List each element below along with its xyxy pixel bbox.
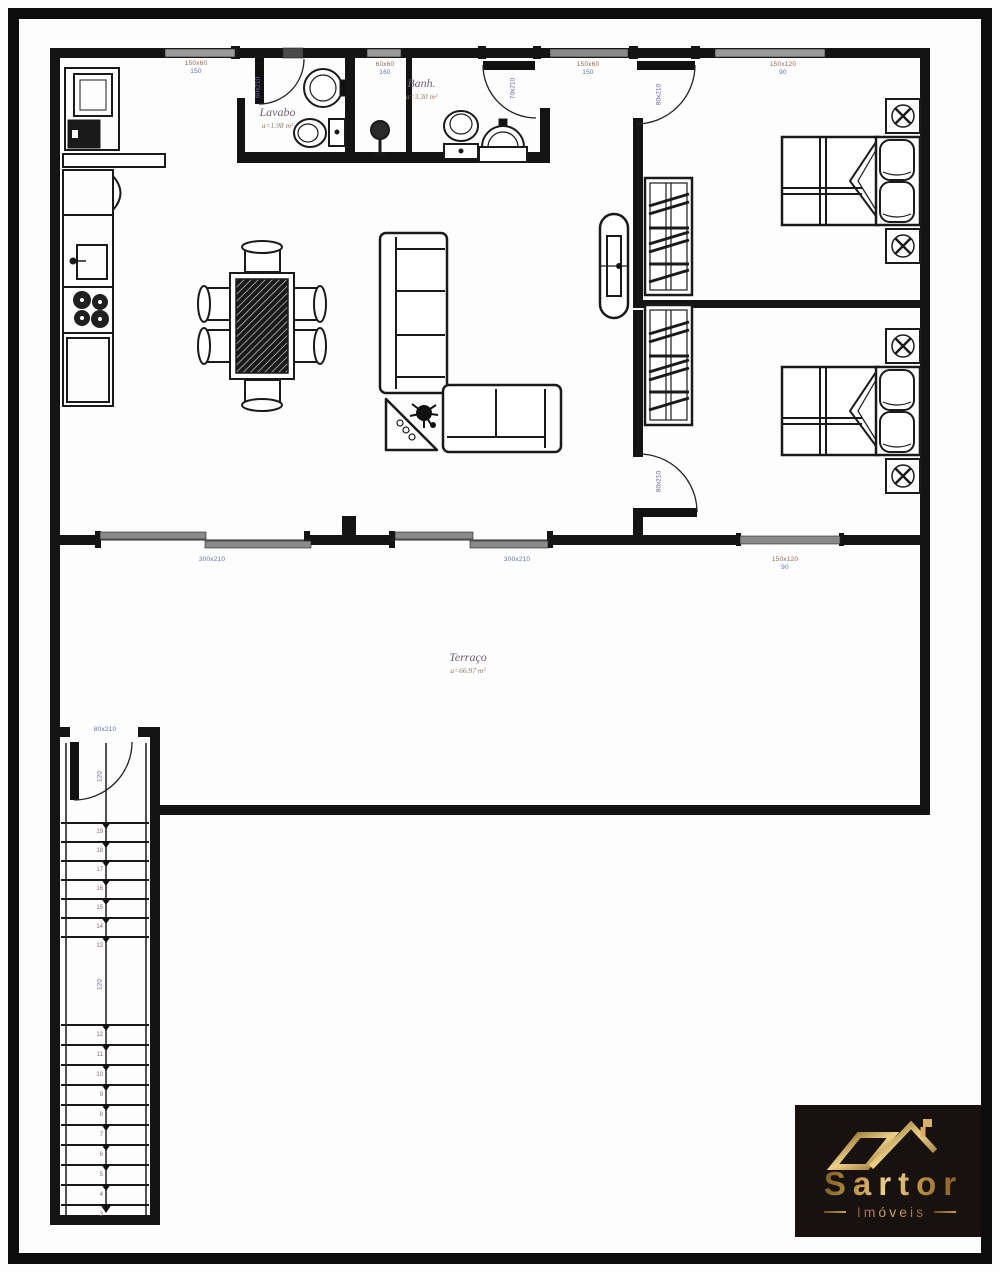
stair-door-leaf — [70, 742, 79, 800]
stair-step-number: 4 — [100, 1192, 103, 1198]
pillow — [880, 182, 914, 222]
cooktop-burners — [73, 291, 109, 328]
kitchen — [63, 68, 165, 406]
stair-step-number: 16 — [96, 886, 103, 892]
room-area-terraco: a=66.97 m² — [418, 666, 518, 675]
brand-name: Sartor — [817, 1167, 963, 1200]
pillow — [880, 370, 914, 410]
sliding-door-panel — [100, 532, 206, 539]
room-label-lavabo: Lavabo — [240, 105, 315, 120]
dining-table-top — [236, 279, 288, 373]
stair-step-number: 3 — [100, 1212, 103, 1218]
stair-step-number: 11 — [97, 1052, 103, 1058]
service-window — [283, 48, 303, 58]
bedroom1-door-leaf — [637, 61, 695, 70]
bedroom2-door-swing — [639, 454, 697, 512]
stair-step-number: 12 — [96, 1032, 103, 1038]
bedroom1-window — [715, 49, 825, 57]
stair-step-number: 18 — [96, 848, 103, 854]
tv-unit — [600, 214, 628, 318]
hall-window-dim: 150x60150 — [552, 61, 624, 78]
sliding-door-panel — [205, 541, 311, 548]
terrace-window-dim: 150x12090 — [749, 556, 821, 573]
brand-tagline: Imóveis — [824, 1205, 956, 1219]
kitchen-window — [165, 49, 235, 57]
basin-tap — [499, 119, 507, 126]
pillow — [880, 140, 914, 180]
stair-width-dim: 120 — [97, 757, 104, 797]
basin-tap — [340, 80, 348, 96]
stair-step-number: 10 — [96, 1072, 103, 1078]
stair-step-number: 5 — [100, 1172, 103, 1178]
kitchen-window-dim: 150x60150 — [160, 60, 232, 77]
hall-window — [550, 49, 628, 57]
shower-head — [371, 121, 389, 139]
brand-logo: Sartor Imóveis — [795, 1105, 985, 1237]
tagline-dash — [934, 1211, 956, 1213]
lavabo-door-dim: 60x210 — [255, 68, 262, 108]
room-area-lavabo: a=1.98 m² — [240, 121, 315, 130]
sliding-door-panel — [395, 532, 473, 539]
logo-roof-icon — [815, 1111, 965, 1173]
fridge-door — [113, 176, 121, 210]
lavabo-door-swing — [259, 59, 304, 104]
stair-step-number: 6 — [100, 1152, 103, 1158]
sofa-chaise — [380, 233, 447, 393]
stair-step-number: 9 — [100, 1092, 103, 1098]
stair-step-number: 8 — [100, 1112, 103, 1118]
stair-step-number: 15 — [96, 905, 103, 911]
stair-step-number: 13 — [96, 943, 103, 949]
terrace-window — [740, 536, 840, 544]
floor-plan-drawing — [0, 0, 1000, 1272]
bed — [782, 367, 878, 455]
kitchen-bar-counter — [63, 154, 165, 167]
bathroom-door-dim: 70x210 — [510, 69, 517, 109]
corner-table — [386, 399, 437, 450]
stair-step-number: 19 — [96, 829, 103, 835]
bedroom1-window-dim: 150x12090 — [747, 61, 819, 78]
stair-step-number: 7 — [100, 1132, 103, 1138]
staircase — [61, 743, 149, 1215]
bedroom1-furniture — [645, 99, 920, 295]
stair-step-number: 14 — [96, 924, 103, 930]
bedroom2-door-dim: 80x210 — [656, 462, 663, 502]
stair-step-number: 17 — [96, 867, 103, 873]
room-area-banheiro: a=3.30 m² — [384, 92, 459, 101]
doors — [70, 58, 697, 800]
pillow — [880, 412, 914, 452]
room-label-banheiro: Banh. — [384, 76, 459, 91]
stair-landing-dim: 120 — [97, 965, 104, 1005]
sofa-set — [380, 233, 561, 452]
terrace-door-left-dim: 300x210 — [176, 556, 248, 564]
sliding-door-panel — [470, 541, 548, 548]
bed — [782, 137, 878, 225]
floor-plan-page: 150x60150 60x60160 150x60150 150x12090 1… — [0, 0, 1000, 1272]
tagline-dash — [824, 1211, 846, 1213]
room-label-terraco: Terraço — [418, 650, 518, 665]
dining-set — [198, 241, 326, 411]
stair-door-dim: 80x210 — [69, 726, 141, 734]
kitchen-sink — [77, 245, 107, 279]
bathroom-window — [367, 49, 401, 57]
bedroom2-furniture — [645, 305, 920, 493]
washbasin-stand — [479, 147, 527, 162]
bedroom2-door-leaf — [639, 508, 697, 517]
kitchen-cabinet — [67, 338, 109, 402]
bedroom1-door-dim: 80x210 — [656, 75, 663, 115]
bedroom1-door-swing — [636, 65, 695, 124]
terrace-door-right-dim: 300x210 — [481, 556, 553, 564]
sofa-loveseat — [443, 385, 561, 452]
